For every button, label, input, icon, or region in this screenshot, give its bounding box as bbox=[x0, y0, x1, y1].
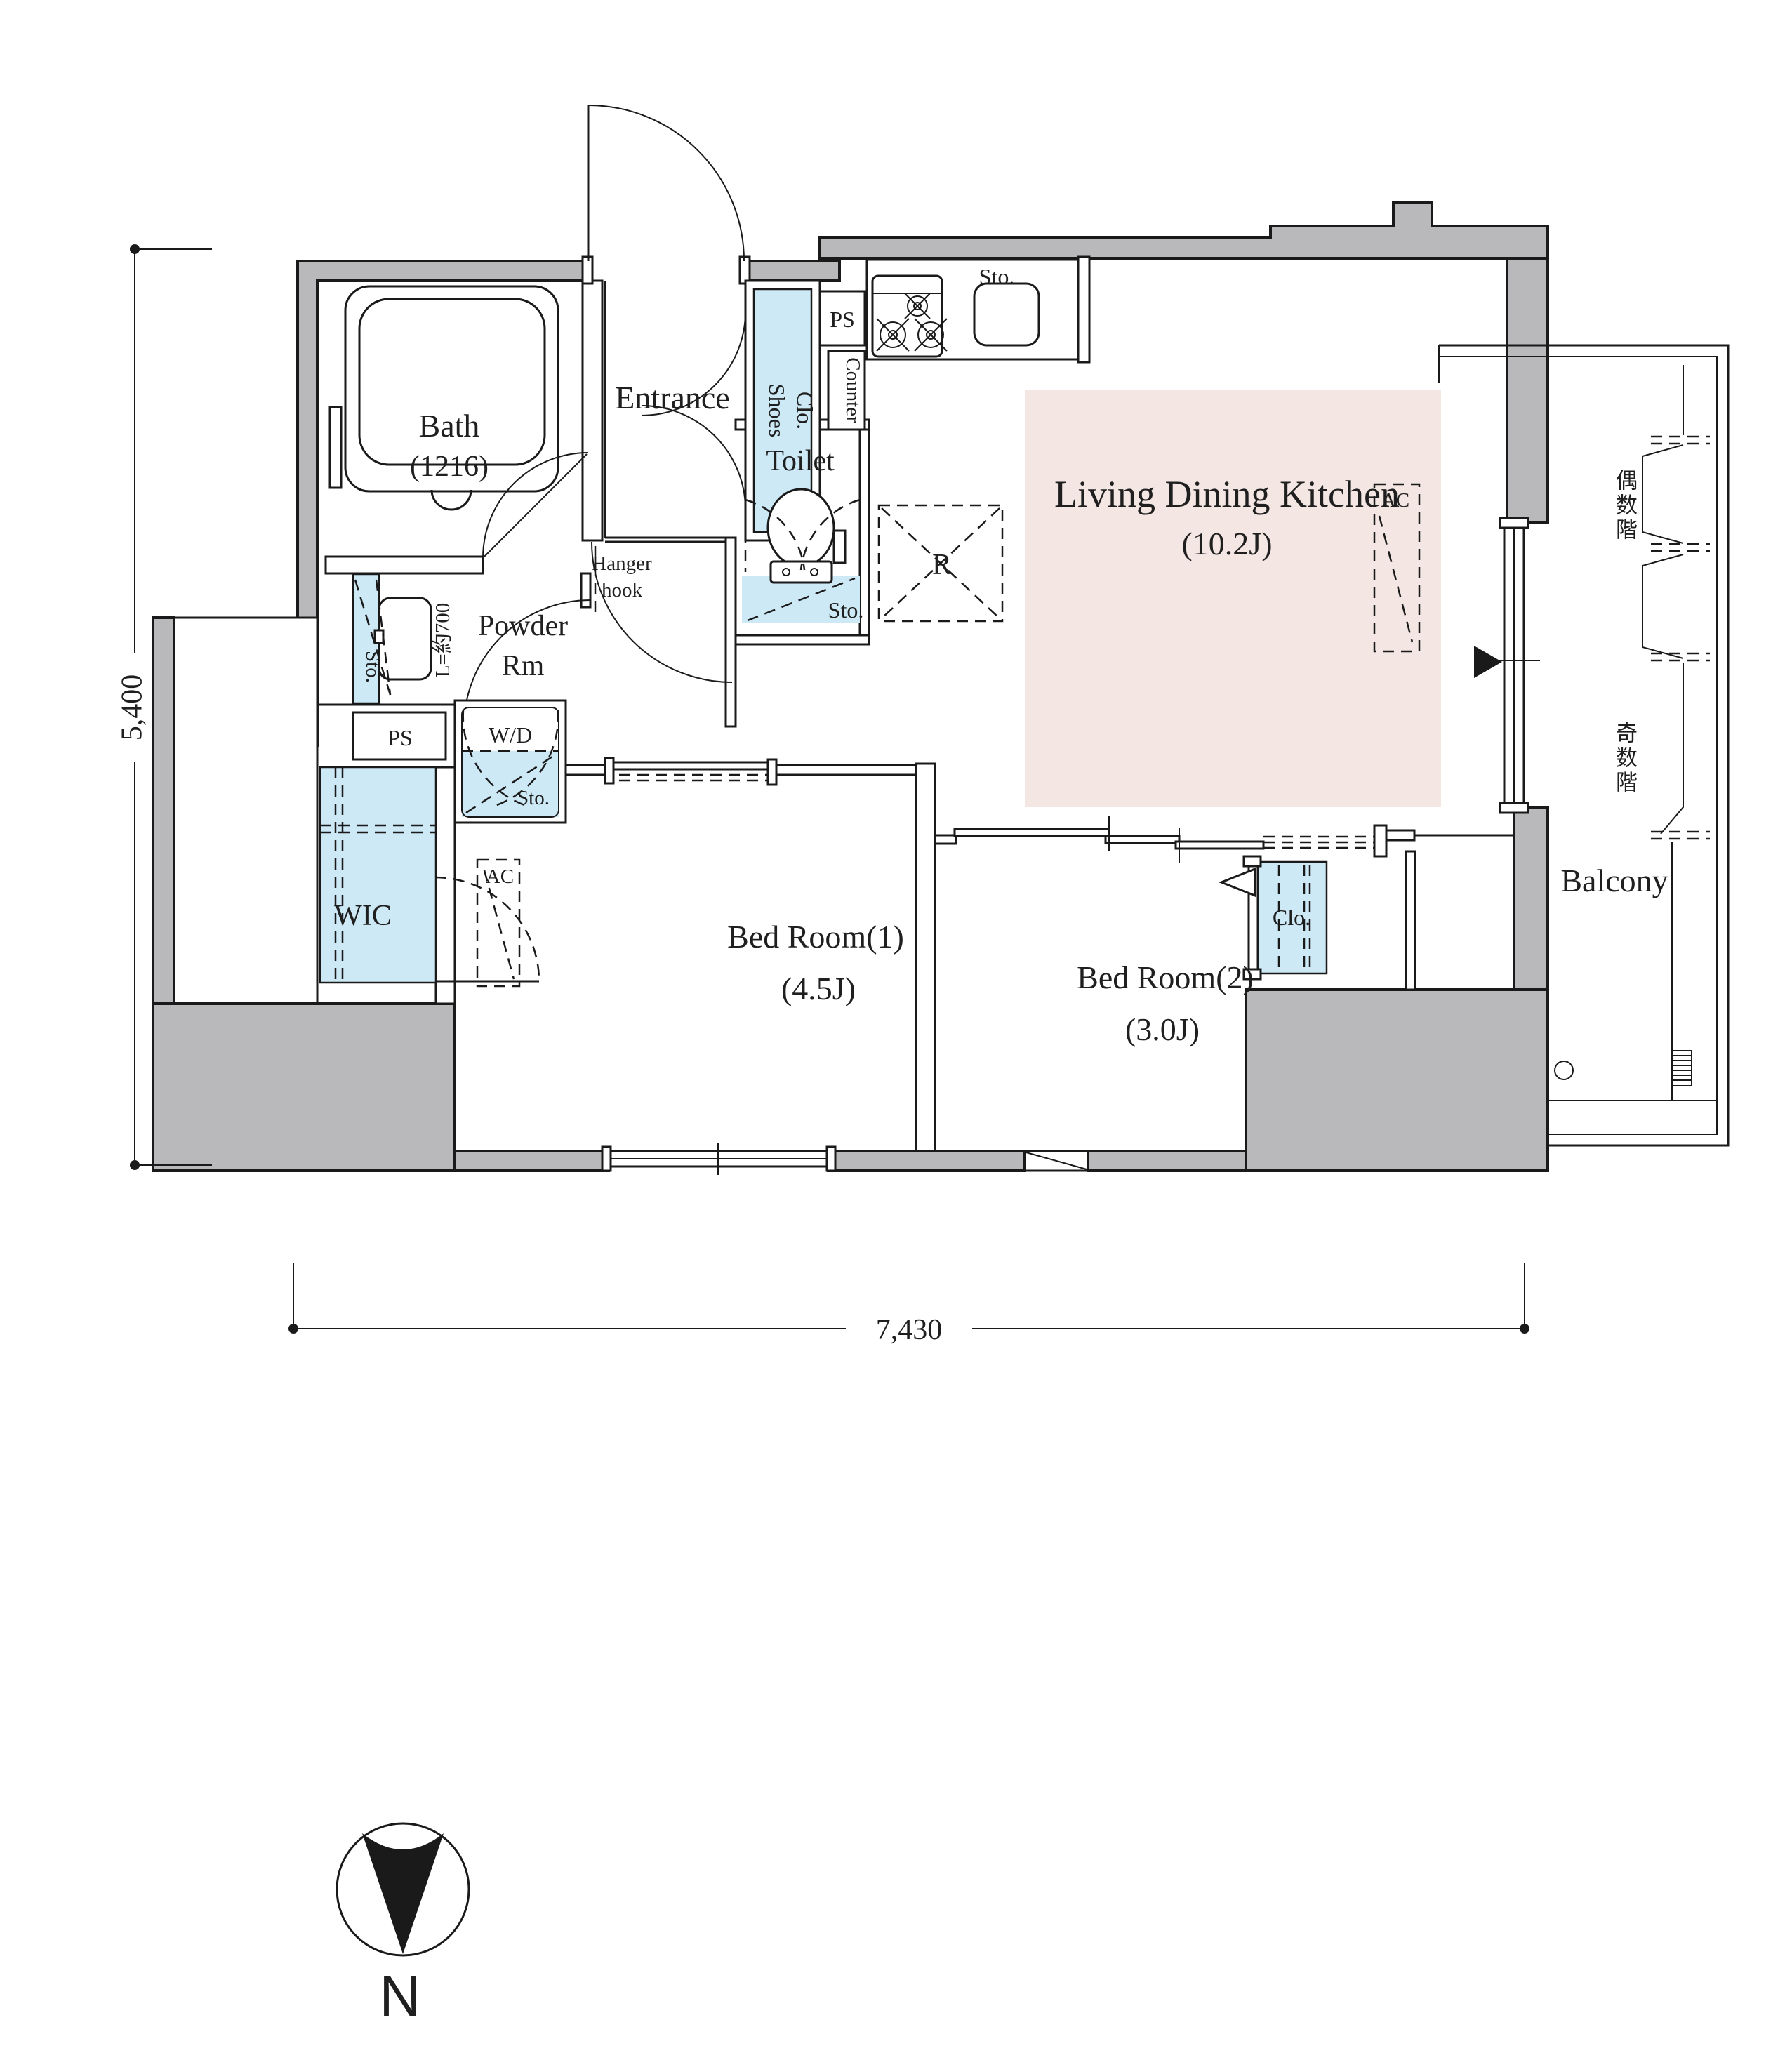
wall-bedroom2-right bbox=[1406, 851, 1415, 990]
hanger-hook-label-2: hook bbox=[602, 579, 643, 602]
ps-upper-label: PS bbox=[830, 307, 855, 332]
closet-door-flag bbox=[1221, 869, 1255, 896]
hanger-hook-label-1: Hanger bbox=[592, 552, 652, 575]
shoes-closet-label-2: Clo. bbox=[792, 392, 818, 430]
compass-arrow bbox=[362, 1833, 444, 1954]
floor-plan: 5,400 7,430 N Bath (1216) Entrance Shoes… bbox=[0, 0, 1792, 2067]
closet-label: Clo. bbox=[1273, 905, 1310, 930]
toilet-washlet bbox=[834, 531, 845, 563]
counter-label: Counter bbox=[842, 357, 864, 423]
toilet-label: Toilet bbox=[766, 445, 835, 477]
powder-label-1: Powder bbox=[478, 610, 568, 642]
entrance-door-arc bbox=[588, 105, 744, 261]
wall-bedroom-divider bbox=[916, 764, 935, 1151]
evacuation-hatch bbox=[1672, 1051, 1692, 1086]
ldk-bedroom2-partition bbox=[935, 816, 1374, 863]
wall-bottom-b bbox=[828, 1151, 1025, 1171]
window-b1-cap-l bbox=[602, 1147, 611, 1171]
bedroom2-size-label: (3.0J) bbox=[1125, 1011, 1200, 1047]
entrance-label: Entrance bbox=[615, 380, 729, 416]
ldk-label: Living Dining Kitchen bbox=[1054, 473, 1400, 515]
wall-bath-entrance bbox=[583, 281, 602, 540]
partition-end-post bbox=[1374, 825, 1386, 856]
ldk-floor bbox=[1025, 390, 1441, 807]
bedroom1-sliding-door bbox=[605, 758, 776, 785]
balcony-label: Balcony bbox=[1560, 863, 1668, 898]
wic-label: WIC bbox=[334, 900, 392, 932]
kitchen-storage-label: Sto. bbox=[979, 264, 1015, 289]
window-b1-cap-r bbox=[827, 1147, 835, 1171]
ac-bedroom-label: AC bbox=[486, 865, 514, 888]
bedroom2-door bbox=[1025, 1151, 1088, 1171]
wall-bedroom1-top-b bbox=[772, 765, 916, 775]
wall-wic-right bbox=[436, 767, 455, 1004]
window-ldk-cap-top bbox=[1500, 518, 1528, 528]
refrigerator-label: R bbox=[932, 549, 952, 581]
wall-bottom-a bbox=[455, 1151, 609, 1171]
wall-partition-stub bbox=[1386, 830, 1414, 840]
wall-right-upper bbox=[1507, 258, 1548, 523]
closet-cap-top bbox=[1244, 856, 1261, 866]
bath-label: Bath bbox=[419, 408, 480, 444]
laundry-pole-label: L=約700 bbox=[431, 603, 454, 678]
b1-door-cap-l bbox=[605, 758, 613, 783]
wall-top-right bbox=[820, 202, 1548, 258]
wall-toilet-bottom bbox=[736, 635, 869, 644]
p-panel-3 bbox=[1176, 842, 1263, 849]
ps-lower-label: PS bbox=[387, 725, 413, 750]
washbasin bbox=[379, 598, 431, 679]
entrance-door bbox=[583, 105, 750, 284]
wd-label: W/D bbox=[489, 722, 532, 747]
wd-storage-label: Sto. bbox=[517, 787, 550, 809]
dimension-bottom: 7,430 bbox=[288, 1263, 1529, 1346]
floor-plan-svg: 5,400 7,430 N Bath (1216) Entrance Shoes… bbox=[0, 0, 1792, 2067]
bath-size-label: (1216) bbox=[410, 451, 489, 483]
wall-block-bottom-left bbox=[153, 1004, 455, 1171]
wall-hall-right bbox=[726, 538, 736, 726]
ldk-balcony-window bbox=[1474, 518, 1540, 813]
shoes-closet-label-1: Shoes bbox=[764, 384, 790, 437]
compass: N bbox=[337, 1823, 469, 2028]
wall-top-shoes bbox=[745, 261, 839, 281]
kitchen bbox=[867, 257, 1089, 362]
wall-block-bottom-right bbox=[1246, 990, 1548, 1171]
window-ldk-cap-bottom bbox=[1500, 803, 1528, 813]
balcony-railing bbox=[1642, 365, 1710, 1101]
entry-arrow bbox=[1474, 646, 1502, 678]
kitchen-end-panel bbox=[1078, 257, 1089, 362]
wall-right-arm bbox=[1514, 807, 1548, 991]
compass-north-label: N bbox=[379, 1965, 420, 2028]
b1-door-cap-r bbox=[768, 759, 776, 785]
bedroom1-label: Bed Room(1) bbox=[727, 919, 904, 955]
wall-bath-powder bbox=[326, 557, 483, 573]
balcony-odd-floors-note: 奇数階 bbox=[1609, 722, 1640, 795]
bath-grab-bar bbox=[330, 407, 341, 488]
wall-bottom-c bbox=[1088, 1151, 1246, 1171]
p-stub bbox=[935, 835, 956, 844]
balcony-drain bbox=[1555, 1061, 1573, 1079]
powder-storage-label: Sto. bbox=[361, 651, 384, 683]
b1-panel-solid bbox=[611, 762, 772, 769]
balcony-even-floors-note: 偶数階 bbox=[1609, 469, 1640, 543]
shoes-door-arc-lower bbox=[642, 406, 745, 510]
p-panel-2 bbox=[1106, 836, 1179, 843]
powder-label-2: Rm bbox=[502, 650, 545, 682]
kitchen-sink bbox=[974, 284, 1039, 345]
dimension-height-label: 5,400 bbox=[117, 674, 149, 741]
ldk-size-label: (10.2J) bbox=[1181, 526, 1272, 561]
bedroom1-size-label: (4.5J) bbox=[781, 971, 856, 1006]
bedroom2-label: Bed Room(2) bbox=[1077, 959, 1254, 995]
p-panel-1 bbox=[955, 829, 1109, 836]
ac-ldk-label: AC bbox=[1381, 489, 1409, 512]
bathtub-drain bbox=[432, 490, 471, 510]
dimension-width-label: 7,430 bbox=[876, 1314, 943, 1346]
washbasin-tap bbox=[375, 630, 383, 643]
wic-area bbox=[320, 767, 436, 983]
wall-left-strip bbox=[153, 618, 174, 1004]
wall-powder-right-stub bbox=[581, 573, 590, 607]
powder-room-fixtures bbox=[353, 574, 431, 703]
bedroom1-window bbox=[602, 1143, 835, 1175]
toilet-storage-label: Sto. bbox=[828, 597, 864, 623]
void-left bbox=[153, 618, 317, 1004]
